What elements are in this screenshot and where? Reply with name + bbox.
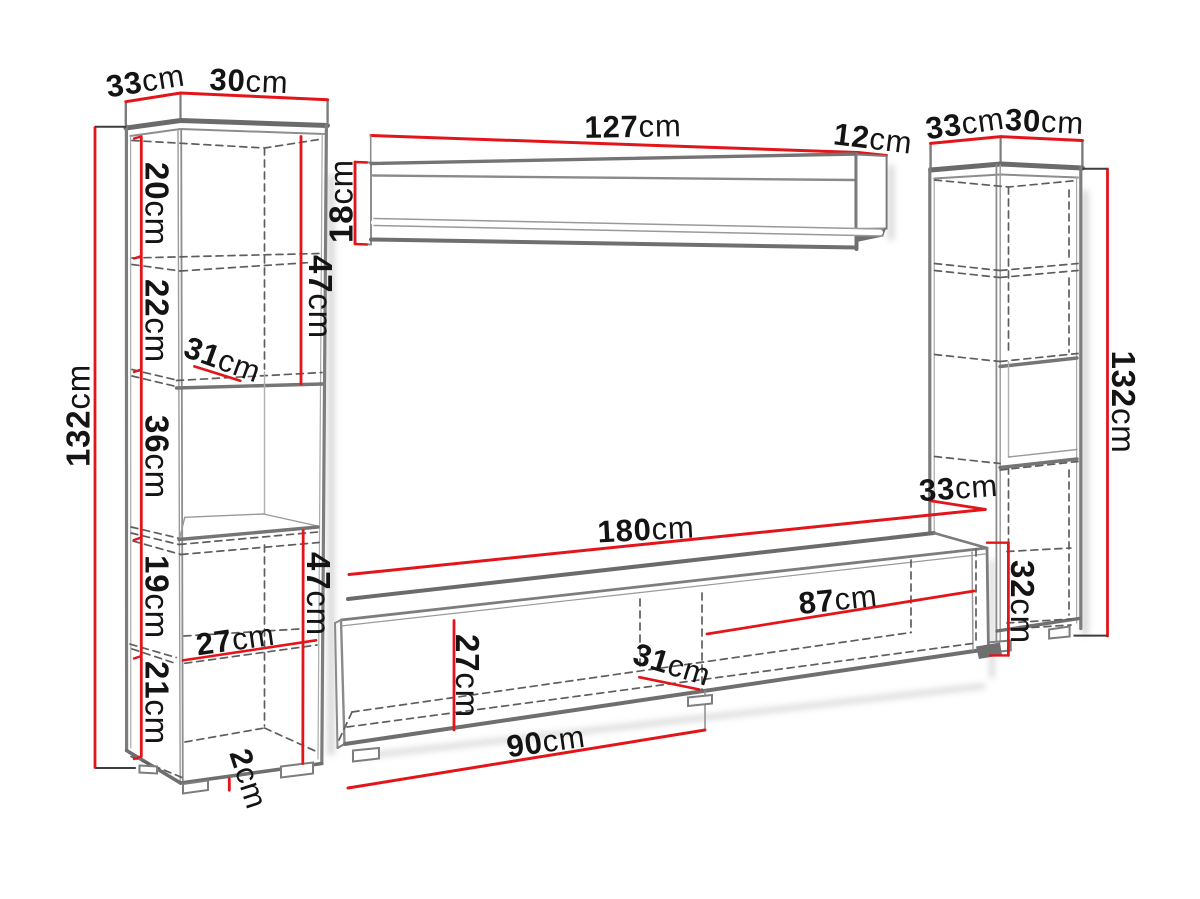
- svg-text:32cm: 32cm: [1004, 560, 1041, 644]
- svg-text:47cm: 47cm: [302, 255, 339, 339]
- svg-text:47cm: 47cm: [300, 552, 337, 636]
- svg-text:22cm: 22cm: [139, 279, 176, 363]
- svg-text:30cm: 30cm: [1004, 102, 1085, 141]
- svg-text:36cm: 36cm: [139, 415, 176, 499]
- svg-text:27cm: 27cm: [449, 634, 486, 718]
- svg-text:19cm: 19cm: [139, 555, 176, 639]
- svg-text:20cm: 20cm: [139, 162, 176, 246]
- svg-text:21cm: 21cm: [139, 661, 176, 745]
- svg-text:132cm: 132cm: [1105, 350, 1142, 453]
- svg-text:180cm: 180cm: [597, 509, 696, 549]
- svg-text:127cm: 127cm: [584, 108, 682, 145]
- svg-text:132cm: 132cm: [60, 364, 97, 467]
- svg-text:18cm: 18cm: [323, 159, 360, 243]
- svg-text:33cm: 33cm: [918, 468, 999, 508]
- svg-text:30cm: 30cm: [209, 62, 289, 100]
